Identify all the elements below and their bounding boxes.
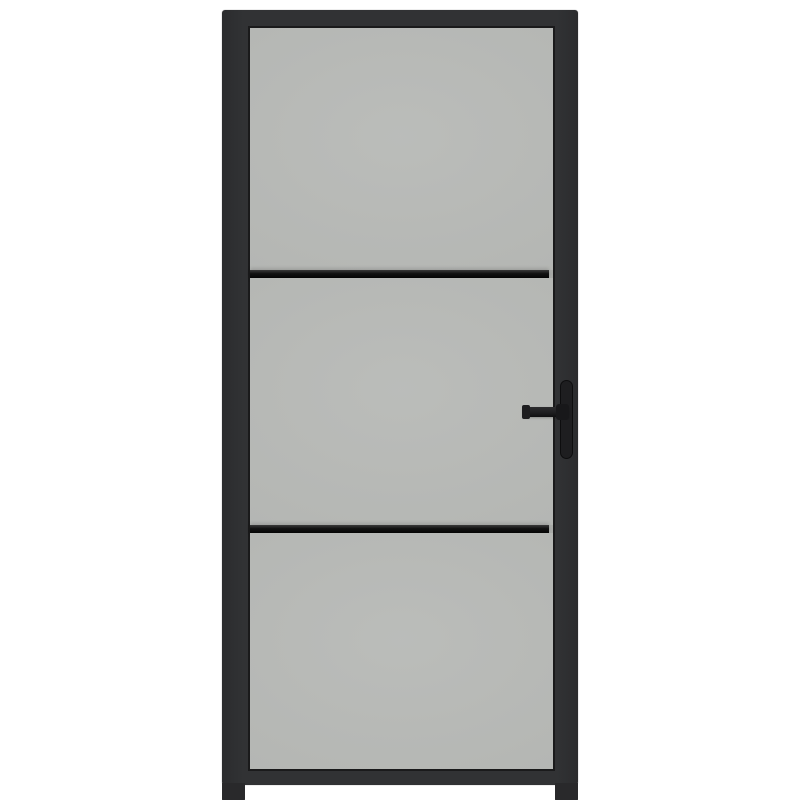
glazing-bar-lower [250,525,549,533]
handle-lever-boss [556,404,569,420]
door-foot-right [555,783,578,800]
glass-pane-top [250,28,553,270]
door [222,10,578,785]
glazing-bar-upper [250,270,549,278]
door-glass [248,26,555,771]
product-photo [0,0,800,800]
handle-backplate [560,380,573,459]
glass-pane-bottom [250,533,553,769]
door-foot-left [222,783,245,800]
glass-pane-middle [250,278,553,525]
